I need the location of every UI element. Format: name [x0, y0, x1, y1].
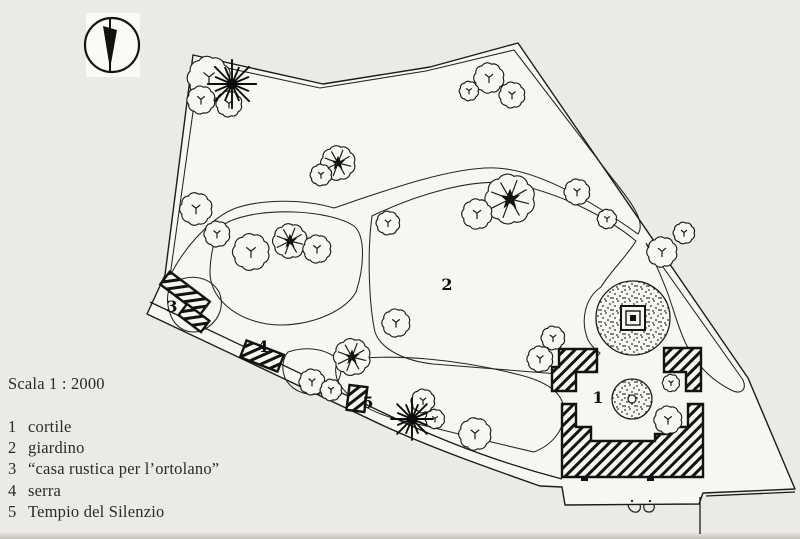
tree-icon — [320, 379, 341, 401]
tree-icon — [662, 374, 679, 391]
tree-icon — [654, 406, 682, 434]
tree-icon — [673, 222, 694, 244]
tree-icon — [459, 418, 491, 450]
map-marker-3: 3 — [166, 297, 177, 316]
tree-icon — [541, 326, 565, 350]
tree-icon — [564, 179, 590, 205]
tree-icon — [180, 193, 212, 225]
tree-icon — [647, 237, 677, 267]
map-marker-1: 1 — [592, 388, 603, 407]
courtyard-fountain — [612, 379, 652, 419]
scan-edge-shadow — [0, 532, 800, 539]
map-marker-2: 2 — [441, 275, 452, 294]
legend-item: 4serra — [8, 480, 219, 501]
tree-icon — [204, 221, 230, 247]
tree-icon — [333, 339, 369, 376]
tree-icon — [303, 235, 331, 263]
scale-label: Scala 1 : 2000 — [8, 374, 219, 394]
tree-icon — [462, 199, 492, 229]
circular-bed — [596, 281, 670, 355]
legend-item: 5Tempio del Silenzio — [8, 501, 219, 522]
map-marker-5: 5 — [362, 393, 373, 412]
tree-icon — [376, 211, 400, 235]
map-marker-4: 4 — [257, 337, 268, 356]
legend-item: 3“casa rustica per l’ortolano” — [8, 458, 219, 479]
legend-item-label: giardino — [28, 438, 85, 457]
legend-item-number: 1 — [8, 416, 22, 437]
legend: Scala 1 : 2000 1cortile 2giardino 3“casa… — [8, 374, 219, 522]
tree-icon — [382, 309, 410, 337]
legend-item-label: serra — [28, 481, 61, 500]
gate-ornament — [628, 505, 654, 512]
tree-icon — [273, 224, 307, 259]
legend-item-number: 3 — [8, 458, 22, 479]
legend-item-number: 4 — [8, 480, 22, 501]
legend-item-number: 5 — [8, 501, 22, 522]
legend-item-number: 2 — [8, 437, 22, 458]
scanned-garden-plan-page: 1 2 3 4 5 Scala 1 : 2000 1cortile 2giard… — [0, 0, 800, 539]
north-arrow-icon — [85, 13, 140, 77]
legend-item: 1cortile — [8, 416, 219, 437]
legend-item-label: “casa rustica per l’ortolano” — [28, 459, 219, 478]
tree-icon — [527, 346, 553, 372]
legend-item: 2giardino — [8, 437, 219, 458]
tree-icon — [597, 209, 616, 228]
pavilion-icon — [621, 306, 645, 330]
tree-icon — [459, 81, 478, 100]
legend-item-label: Tempio del Silenzio — [28, 502, 164, 521]
tree-icon — [499, 82, 525, 108]
tree-icon — [232, 234, 268, 271]
palm-tree-icon — [208, 60, 256, 108]
legend-item-label: cortile — [28, 417, 72, 436]
tree-icon — [187, 86, 215, 114]
tree-icon — [310, 164, 331, 186]
palm-tree-icon — [391, 398, 433, 440]
